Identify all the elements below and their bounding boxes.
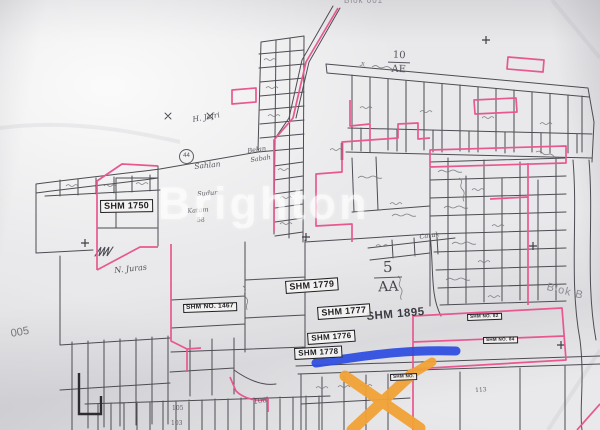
plot-number-105: 105 — [172, 406, 183, 412]
block-code: AA — [374, 279, 403, 296]
block-title-top: Blok 001 — [344, 0, 383, 5]
block-marker-5-aa: 5 AA — [373, 258, 402, 296]
plot-number-103: 103 — [171, 421, 182, 427]
road-name-label: Jl. — [359, 62, 366, 69]
parcel-label-shm-1750: SHM 1750 — [100, 199, 153, 213]
parcel-label-shm-no-crossed: SHM NO. — [390, 373, 418, 380]
block-code: AE — [388, 64, 410, 76]
plot-number-113: 113 — [475, 387, 487, 394]
block-number: 10 — [388, 50, 410, 62]
photographed-map: Blok 001 Jl. 10 AE 5 AA SHM 1895 SHM 175… — [0, 0, 600, 430]
block-number: 5 — [373, 258, 402, 277]
block-marker-10-ae: 10 AE — [388, 50, 411, 76]
parcel-label-shm-no-84: SHM NO. 84 — [483, 336, 518, 343]
parcel-label-shm-1778: SHM 1778 — [294, 345, 343, 360]
brighton-watermark: Brighton — [158, 178, 369, 230]
circled-plot-number-44: 44 — [179, 149, 194, 164]
parcel-label-shm-no-82: SHM NO. 82 — [467, 313, 502, 321]
